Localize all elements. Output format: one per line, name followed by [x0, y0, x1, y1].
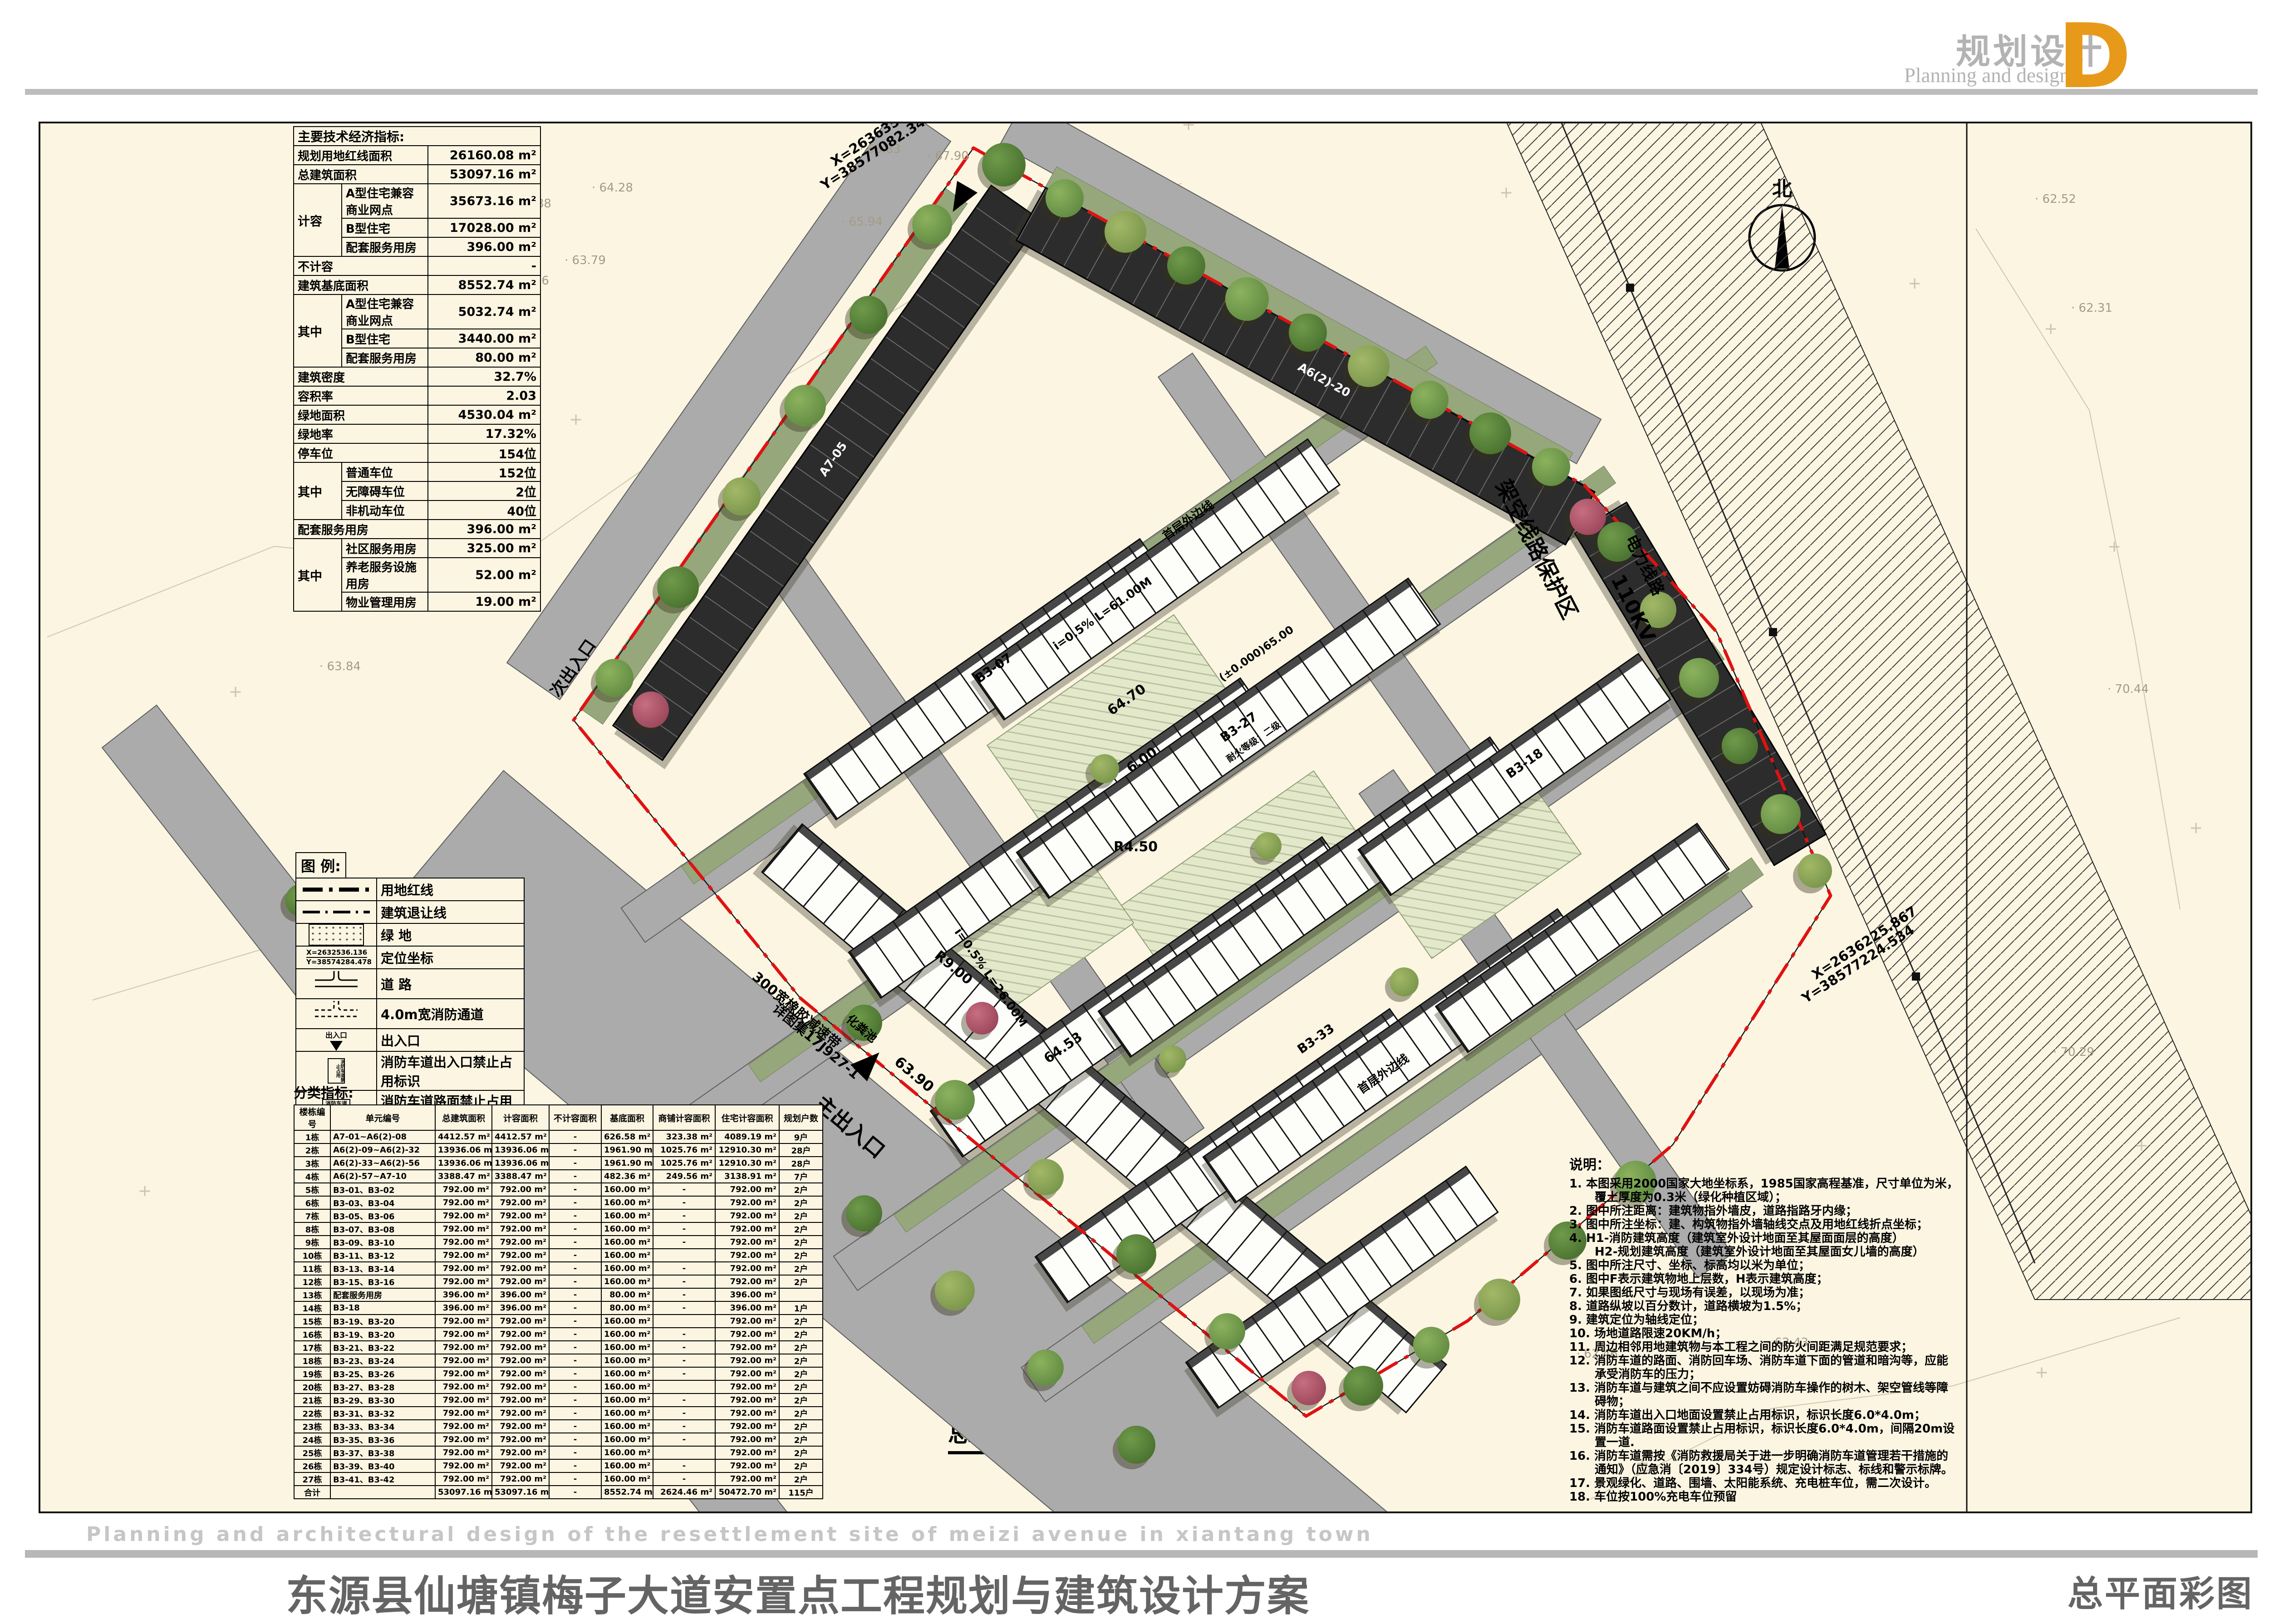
classification-cell: - — [549, 1486, 601, 1499]
classification-header: 单元编号 — [330, 1105, 435, 1130]
plan-label: R4.50 — [1114, 839, 1158, 855]
classification-cell: - — [653, 1407, 715, 1420]
note-item: 7. 如果图纸尺寸与现场有误差，以现场为准； — [1569, 1286, 1960, 1300]
classification-cell: - — [549, 1183, 601, 1196]
table-row: 17栋B3-21、B3-22792.00 m²792.00 m²-160.00 … — [294, 1341, 823, 1354]
classification-cell: 115户 — [779, 1486, 823, 1499]
logo-mark: D — [2058, 18, 2112, 95]
spot-elevation: · 70.29 — [2053, 1045, 2094, 1059]
classification-cell: 626.58 m² — [601, 1130, 653, 1143]
indicator-group: 其中 — [294, 294, 342, 367]
classification-cell: 792.00 m² — [715, 1183, 779, 1196]
classification-cell: 2户 — [779, 1420, 823, 1433]
classification-cell: 13936.06 m² — [492, 1157, 549, 1170]
classification-cell: 16栋 — [294, 1328, 330, 1341]
indicator-label: 容积率 — [294, 386, 428, 405]
classification-cell: - — [653, 1236, 715, 1249]
legend-label: 道 路 — [377, 969, 524, 999]
tree-icon — [722, 477, 761, 515]
table-row: 8栋B3-07、B3-08792.00 m²792.00 m²-160.00 m… — [294, 1222, 823, 1236]
table-row: 13栋配套服务用房396.00 m²396.00 m²-80.00 m²-396… — [294, 1288, 823, 1301]
classification-cell: 160.00 m² — [601, 1393, 653, 1407]
classification-cell: 2户 — [779, 1275, 823, 1288]
indicator-label: B型住宅 — [342, 218, 428, 237]
tree-icon — [1117, 1426, 1155, 1464]
classification-cell: 2户 — [779, 1222, 823, 1236]
table-row: 19栋B3-25、B3-26792.00 m²792.00 m²-160.00 … — [294, 1367, 823, 1380]
indicator-label: 绿地面积 — [294, 405, 428, 424]
classification-cell: - — [549, 1393, 601, 1407]
tree-icon — [846, 1195, 882, 1231]
tree-icon — [935, 1080, 975, 1120]
indicator-value: 4530.04 m² — [428, 405, 540, 424]
classification-cell: 792.00 m² — [492, 1367, 549, 1380]
tree-icon — [1532, 448, 1570, 486]
indicator-row: 其中普通车位152位 — [294, 462, 540, 481]
classification-cell: 792.00 m² — [435, 1196, 492, 1209]
classification-cell: 23栋 — [294, 1420, 330, 1433]
classification-cell: 792.00 m² — [715, 1407, 779, 1420]
classification-cell — [653, 1380, 715, 1393]
classification-cell: 792.00 m² — [435, 1407, 492, 1420]
spot-elevation: · 62.31 — [2071, 301, 2112, 315]
classification-cell: 792.00 m² — [715, 1328, 779, 1341]
classification-cell: 160.00 m² — [601, 1222, 653, 1236]
note-item: 16. 消防车道需按《消防救援局关于进一步明确消防车道管理若干措施的通知》（应急… — [1569, 1449, 1960, 1477]
spot-elevation: · 62.52 — [2035, 192, 2076, 206]
survey-cross-icon: + — [569, 410, 583, 429]
classification-cell: A7-01~A6(2)-08 — [330, 1130, 435, 1143]
classification-cell: 2栋 — [294, 1143, 330, 1157]
project-title: 东源县仙塘镇梅子大道安置点工程规划与建筑设计方案 — [286, 1562, 1310, 1623]
classification-cell: B3-13、B3-14 — [330, 1262, 435, 1275]
classification-cell — [653, 1315, 715, 1328]
classification-cell: - — [653, 1196, 715, 1209]
survey-cross-icon: + — [2189, 819, 2203, 837]
classification-cell: - — [549, 1407, 601, 1420]
table-row: 15栋B3-19、B3-20792.00 m²792.00 m²-160.00 … — [294, 1315, 823, 1328]
table-row: 9栋B3-09、B3-10792.00 m²792.00 m²-160.00 m… — [294, 1236, 823, 1249]
classification-cell: B3-19、B3-20 — [330, 1328, 435, 1341]
classification-cell: 160.00 m² — [601, 1209, 653, 1222]
classification-cell: 2户 — [779, 1183, 823, 1196]
legend-title: 图 例: — [295, 852, 346, 878]
survey-cross-icon: + — [2135, 1136, 2148, 1155]
note-item: 17. 景观绿化、道路、围墙、太阳能系统、充电桩车位，需二次设计。 — [1569, 1477, 1960, 1490]
survey-cross-icon: + — [2107, 537, 2121, 556]
classification-cell: 4089.19 m² — [715, 1130, 779, 1143]
note-item: 1. 本图采用2000国家大地坐标系，1985国家高程基准，尺寸单位为米，覆土厚… — [1569, 1177, 1960, 1204]
note-item: H2-规划建筑高度（建筑室外设计地面至其屋面女儿墙的高度） — [1569, 1245, 1960, 1259]
survey-cross-icon: + — [2035, 1363, 2048, 1382]
legend-row: 出入口出入口 — [296, 1029, 524, 1051]
indicator-value: 5032.74 m² — [428, 294, 540, 329]
classification-cell: 80.00 m² — [601, 1301, 653, 1315]
classification-cell: 792.00 m² — [492, 1315, 549, 1328]
classification-cell: - — [549, 1222, 601, 1236]
legend-label: 出入口 — [377, 1029, 524, 1051]
classification-cell: 50472.70 m² — [715, 1486, 779, 1499]
classification-cell: 792.00 m² — [492, 1446, 549, 1459]
survey-cross-icon: + — [229, 682, 242, 701]
indicator-value: 2.03 — [428, 386, 540, 405]
legend-row: X=2632536.136Y=38574284.478定位坐标 — [296, 946, 524, 969]
classification-cell: 28户 — [779, 1157, 823, 1170]
classification-cell: 4412.57 m² — [435, 1130, 492, 1143]
classification-header: 规划户数 — [779, 1105, 823, 1130]
classification-cell: 792.00 m² — [492, 1222, 549, 1236]
classification-cell: - — [549, 1143, 601, 1157]
classification-cell: - — [653, 1341, 715, 1354]
classification-panel: 分类指标: 楼栋编号单元编号总建筑面积计容面积不计容面积基底面积商铺计容面积住宅… — [294, 1082, 822, 1499]
indicator-label: 不计容 — [294, 256, 428, 275]
note-item: 6. 图中F表示建筑物地上层数，H表示建筑高度； — [1569, 1272, 1960, 1286]
classification-cell: 792.00 m² — [492, 1236, 549, 1249]
classification-cell: - — [549, 1236, 601, 1249]
classification-cell: 792.00 m² — [715, 1341, 779, 1354]
legend-row: 道 路 — [296, 969, 524, 999]
classification-cell: 160.00 m² — [601, 1433, 653, 1446]
classification-cell: 792.00 m² — [435, 1354, 492, 1367]
tree-icon — [784, 385, 826, 427]
classification-cell: 3栋 — [294, 1157, 330, 1170]
classification-cell: 160.00 m² — [601, 1196, 653, 1209]
table-row: 14栋B3-18396.00 m²396.00 m²-80.00 m²-396.… — [294, 1301, 823, 1315]
note-item: 12. 消防车道的路面、消防回车场、消防车道下面的管道和暗沟等，应能承受消防车的… — [1569, 1354, 1960, 1381]
classification-cell: 11栋 — [294, 1262, 330, 1275]
classification-cell: 792.00 m² — [715, 1275, 779, 1288]
survey-cross-icon: + — [1499, 183, 1513, 202]
table-row: 合计53097.16 m²53097.16 m²-8552.74 m²2624.… — [294, 1486, 823, 1499]
indicator-label: 建筑密度 — [294, 367, 428, 386]
classification-cell: 2户 — [779, 1380, 823, 1393]
classification-cell: - — [549, 1341, 601, 1354]
classification-cell: - — [549, 1367, 601, 1380]
note-item: 3. 图中所注坐标：建、构筑物指外墙轴线交点及用地红线折点坐标； — [1569, 1218, 1960, 1231]
table-row: 6栋B3-03、B3-04792.00 m²792.00 m²-160.00 m… — [294, 1196, 823, 1209]
classification-cell: 792.00 m² — [492, 1433, 549, 1446]
classification-cell: 9户 — [779, 1130, 823, 1143]
classification-cell: 160.00 m² — [601, 1354, 653, 1367]
classification-cell: 8552.74 m² — [601, 1486, 653, 1499]
classification-cell: 15栋 — [294, 1315, 330, 1328]
legend-symbol-setback-icon — [296, 901, 377, 923]
classification-cell: 792.00 m² — [715, 1315, 779, 1328]
classification-cell: 7栋 — [294, 1209, 330, 1222]
classification-cell: 2户 — [779, 1196, 823, 1209]
indicator-value: 152位 — [428, 462, 540, 481]
classification-cell: 396.00 m² — [492, 1288, 549, 1301]
indicator-value: 80.00 m² — [428, 348, 540, 367]
classification-cell: 18栋 — [294, 1354, 330, 1367]
table-row: 25栋B3-37、B3-38792.00 m²792.00 m²-160.00 … — [294, 1446, 823, 1459]
indicator-label: 普通车位 — [342, 462, 428, 481]
classification-cell: 14栋 — [294, 1301, 330, 1315]
note-item: 2. 图中所注距离：建筑物指外墙皮，道路指路牙内缘； — [1569, 1204, 1960, 1218]
classification-cell: 792.00 m² — [435, 1236, 492, 1249]
classification-header: 总建筑面积 — [435, 1105, 492, 1130]
note-item: 9. 建筑定位为轴线定位； — [1569, 1313, 1960, 1327]
table-row: 11栋B3-13、B3-14792.00 m²792.00 m²-160.00 … — [294, 1262, 823, 1275]
classification-cell: - — [549, 1249, 601, 1262]
classification-cell: - — [549, 1196, 601, 1209]
classification-cell: 4412.57 m² — [492, 1130, 549, 1143]
indicator-group: 其中 — [294, 539, 342, 611]
table-row: 2栋A6(2)-09~A6(2)-3213936.06 m²13936.06 m… — [294, 1143, 823, 1157]
table-row: 24栋B3-35、B3-36792.00 m²792.00 m²-160.00 … — [294, 1433, 823, 1446]
indicator-label: A型住宅兼容商业网点 — [342, 294, 428, 329]
classification-cell: 792.00 m² — [715, 1433, 779, 1446]
classification-cell: A6(2)-33~A6(2)-56 — [330, 1157, 435, 1170]
table-row: 26栋B3-39、B3-40792.00 m²792.00 m²-160.00 … — [294, 1459, 823, 1472]
classification-cell: 160.00 m² — [601, 1420, 653, 1433]
indicator-value: 53097.16 m² — [428, 165, 540, 184]
classification-cell — [330, 1486, 435, 1499]
tree-icon — [1798, 854, 1832, 888]
classification-cell: 792.00 m² — [492, 1380, 549, 1393]
classification-cell: 792.00 m² — [715, 1380, 779, 1393]
classification-cell: 792.00 m² — [715, 1262, 779, 1275]
classification-cell: 1961.90 m² — [601, 1143, 653, 1157]
classification-cell: 1户 — [779, 1301, 823, 1315]
classification-cell: B3-25、B3-26 — [330, 1367, 435, 1380]
indicator-value: 17.32% — [428, 424, 540, 443]
indicator-label: A型住宅兼容商业网点 — [342, 184, 428, 218]
indicator-row: 建筑基底面积8552.74 m² — [294, 275, 540, 294]
indicator-value: 3440.00 m² — [428, 329, 540, 348]
classification-cell: 792.00 m² — [435, 1459, 492, 1472]
classification-cell: 28户 — [779, 1143, 823, 1157]
classification-cell: - — [549, 1328, 601, 1341]
classification-cell: 9栋 — [294, 1236, 330, 1249]
legend-symbol-redline-icon — [296, 878, 377, 901]
tree-icon — [1679, 658, 1719, 698]
indicator-group: 其中 — [294, 462, 342, 520]
classification-cell: - — [549, 1288, 601, 1301]
classification-header: 住宅计容面积 — [715, 1105, 779, 1130]
tree-icon — [1469, 412, 1511, 454]
classification-cell: 792.00 m² — [492, 1472, 549, 1486]
classification-cell: 2户 — [779, 1262, 823, 1275]
tree-icon — [1090, 754, 1119, 783]
classification-cell: B3-19、B3-20 — [330, 1315, 435, 1328]
note-item: 10. 场地道路限速20KM/h； — [1569, 1327, 1960, 1340]
classification-cell: 792.00 m² — [435, 1341, 492, 1354]
classification-cell: 53097.16 m² — [435, 1486, 492, 1499]
classification-cell: 160.00 m² — [601, 1472, 653, 1486]
indicator-row: 停车位154位 — [294, 443, 540, 462]
indicator-label: 非机动车位 — [342, 500, 428, 520]
indicator-value: 32.7% — [428, 367, 540, 386]
table-row: 3栋A6(2)-33~A6(2)-5613936.06 m²13936.06 m… — [294, 1157, 823, 1170]
classification-cell: - — [653, 1262, 715, 1275]
classification-cell: 792.00 m² — [435, 1328, 492, 1341]
classification-cell: 792.00 m² — [492, 1183, 549, 1196]
classification-cell: 160.00 m² — [601, 1183, 653, 1196]
classification-cell: - — [549, 1472, 601, 1486]
survey-cross-icon: + — [2044, 319, 2058, 338]
indicator-label: 配套服务用房 — [342, 237, 428, 256]
classification-cell: 792.00 m² — [435, 1183, 492, 1196]
classification-cell: 792.00 m² — [492, 1341, 549, 1354]
classification-cell: 合计 — [294, 1486, 330, 1499]
classification-cell: 792.00 m² — [715, 1393, 779, 1407]
classification-cell: 1025.76 m² — [653, 1143, 715, 1157]
classification-cell: 792.00 m² — [435, 1262, 492, 1275]
classification-header: 楼栋编号 — [294, 1105, 330, 1130]
classification-cell: 2户 — [779, 1407, 823, 1420]
classification-cell: 53097.16 m² — [492, 1486, 549, 1499]
tree-icon — [1027, 1159, 1064, 1195]
indicator-label: 绿地率 — [294, 424, 428, 443]
legend-row: 4.0m宽消防通道 — [296, 999, 524, 1029]
classification-header: 不计容面积 — [549, 1105, 601, 1130]
classification-cell: 160.00 m² — [601, 1315, 653, 1328]
classification-cell: 1961.90 m² — [601, 1157, 653, 1170]
classification-header: 商铺计容面积 — [653, 1105, 715, 1130]
classification-cell: 160.00 m² — [601, 1407, 653, 1420]
classification-cell: 160.00 m² — [601, 1367, 653, 1380]
classification-cell: B3-35、B3-36 — [330, 1433, 435, 1446]
legend-label: 建筑退让线 — [377, 901, 524, 923]
spot-elevation: · 67.90 — [928, 149, 969, 163]
legend-label: 定位坐标 — [377, 946, 524, 969]
classification-cell: 2户 — [779, 1433, 823, 1446]
classification-cell: B3-33、B3-34 — [330, 1420, 435, 1433]
tree-icon — [935, 1271, 975, 1310]
tree-icon — [595, 659, 634, 697]
classification-cell: - — [549, 1380, 601, 1393]
classification-cell: 17栋 — [294, 1341, 330, 1354]
classification-cell: 792.00 m² — [715, 1249, 779, 1262]
indicators-table: 主要技术经济指标:规划用地红线面积26160.08 m²总建筑面积53097.1… — [293, 126, 541, 612]
tree-icon — [1254, 832, 1282, 859]
table-row: 22栋B3-31、B3-32792.00 m²792.00 m²-160.00 … — [294, 1407, 823, 1420]
note-item: 14. 消防车道出入口地面设置禁止占用标识，标识长度6.0*4.0m； — [1569, 1408, 1960, 1422]
tree-icon — [1343, 1366, 1383, 1406]
classification-cell: 792.00 m² — [435, 1209, 492, 1222]
sheet-name: 总平面彩图 — [2068, 1565, 2254, 1616]
classification-cell: 792.00 m² — [715, 1472, 779, 1486]
legend-symbol-green-icon — [296, 923, 377, 946]
classification-cell: 6栋 — [294, 1196, 330, 1209]
legend-row: 用地红线 — [296, 878, 524, 901]
classification-cell: B3-21、B3-22 — [330, 1341, 435, 1354]
classification-cell: 792.00 m² — [715, 1420, 779, 1433]
classification-cell: - — [653, 1459, 715, 1472]
classification-cell: 13936.06 m² — [435, 1157, 492, 1170]
classification-cell: 3388.47 m² — [435, 1170, 492, 1183]
classification-cell: 2户 — [779, 1315, 823, 1328]
indicator-row: 其中A型住宅兼容商业网点5032.74 m² — [294, 294, 540, 329]
indicator-label: 养老服务设施用房 — [342, 558, 428, 592]
classification-cell: 13936.06 m² — [435, 1143, 492, 1157]
survey-cross-icon: + — [138, 1182, 152, 1200]
classification-table: 楼栋编号单元编号总建筑面积计容面积不计容面积基底面积商铺计容面积住宅计容面积规划… — [294, 1104, 823, 1499]
footer-divider — [25, 1550, 2258, 1558]
classification-cell: 792.00 m² — [435, 1249, 492, 1262]
classification-title: 分类指标: — [294, 1082, 822, 1102]
indicator-label: 建筑基底面积 — [294, 275, 428, 294]
classification-cell: B3-23、B3-24 — [330, 1354, 435, 1367]
classification-cell: B3-01、B3-02 — [330, 1183, 435, 1196]
indicators-panel: 主要技术经济指标:规划用地红线面积26160.08 m²总建筑面积53097.1… — [293, 126, 541, 612]
indicator-value: 17028.00 m² — [428, 218, 540, 237]
classification-cell: 20栋 — [294, 1380, 330, 1393]
classification-cell: - — [549, 1130, 601, 1143]
classification-cell: B3-31、B3-32 — [330, 1407, 435, 1420]
classification-cell: - — [549, 1459, 601, 1472]
indicator-label: B型住宅 — [342, 329, 428, 348]
legend-symbol-road-icon — [296, 969, 377, 999]
classification-cell: - — [653, 1328, 715, 1341]
classification-cell: 2户 — [779, 1393, 823, 1407]
table-row: 4栋A6(2)-57~A7-103388.47 m²3388.47 m²-482… — [294, 1170, 823, 1183]
classification-cell: 792.00 m² — [715, 1209, 779, 1222]
classification-cell: 2户 — [779, 1209, 823, 1222]
classification-cell: - — [549, 1433, 601, 1446]
indicator-value: - — [428, 256, 540, 275]
classification-header-row: 楼栋编号单元编号总建筑面积计容面积不计容面积基底面积商铺计容面积住宅计容面积规划… — [294, 1105, 823, 1130]
classification-cell: 80.00 m² — [601, 1288, 653, 1301]
legend-label: 4.0m宽消防通道 — [377, 999, 524, 1029]
classification-cell: - — [653, 1393, 715, 1407]
tree-icon — [1105, 211, 1146, 253]
indicator-row: 不计容- — [294, 256, 540, 275]
classification-cell: 2户 — [779, 1472, 823, 1486]
table-row: 16栋B3-19、B3-20792.00 m²792.00 m²-160.00 … — [294, 1328, 823, 1341]
tree-icon — [1410, 381, 1449, 419]
table-row: 5栋B3-01、B3-02792.00 m²792.00 m²-160.00 m… — [294, 1183, 823, 1196]
classification-cell: 396.00 m² — [492, 1301, 549, 1315]
tree-icon — [1570, 499, 1606, 535]
classification-cell: 27栋 — [294, 1472, 330, 1486]
note-item: 5. 图中所注尺寸、坐标、标高均以米为单位； — [1569, 1259, 1960, 1272]
tree-icon — [1116, 1234, 1156, 1274]
classification-cell: 792.00 m² — [492, 1407, 549, 1420]
note-item: 8. 道路纵坡以百分数计，道路横坡为1.5%； — [1569, 1300, 1960, 1313]
classification-cell — [653, 1446, 715, 1459]
spot-elevation: · 64.98 — [628, 122, 669, 122]
classification-cell: B3-09、B3-10 — [330, 1236, 435, 1249]
classification-cell: 792.00 m² — [492, 1328, 549, 1341]
legend-row: 绿 地 — [296, 923, 524, 946]
notes-title: 说明： — [1569, 1153, 1960, 1173]
classification-cell: 396.00 m² — [435, 1301, 492, 1315]
classification-cell: 12栋 — [294, 1275, 330, 1288]
classification-cell: 792.00 m² — [435, 1275, 492, 1288]
classification-cell: 792.00 m² — [715, 1196, 779, 1209]
classification-cell: 792.00 m² — [435, 1380, 492, 1393]
indicator-row: 绿地面积4530.04 m² — [294, 405, 540, 424]
classification-cell: 160.00 m² — [601, 1262, 653, 1275]
classification-cell: 8栋 — [294, 1222, 330, 1236]
indicators-title-row: 主要技术经济指标: — [294, 127, 540, 146]
table-row: 20栋B3-27、B3-28792.00 m²792.00 m²-160.00 … — [294, 1380, 823, 1393]
indicator-group: 计容 — [294, 184, 342, 256]
indicator-value: 26160.08 m² — [428, 146, 540, 165]
indicator-value: 8552.74 m² — [428, 275, 540, 294]
legend-symbol-entrance-icon: 出入口 — [296, 1029, 377, 1051]
classification-header: 计容面积 — [492, 1105, 549, 1130]
note-item: 13. 消防车道与建筑之间不应设置妨碍消防车操作的树木、架空管线等障碍物； — [1569, 1381, 1960, 1408]
classification-cell: 13936.06 m² — [492, 1143, 549, 1157]
tree-icon — [1046, 179, 1084, 217]
classification-cell: 5栋 — [294, 1183, 330, 1196]
table-row: 23栋B3-33、B3-34792.00 m²792.00 m²-160.00 … — [294, 1420, 823, 1433]
classification-cell: - — [549, 1209, 601, 1222]
classification-cell: 26栋 — [294, 1459, 330, 1472]
